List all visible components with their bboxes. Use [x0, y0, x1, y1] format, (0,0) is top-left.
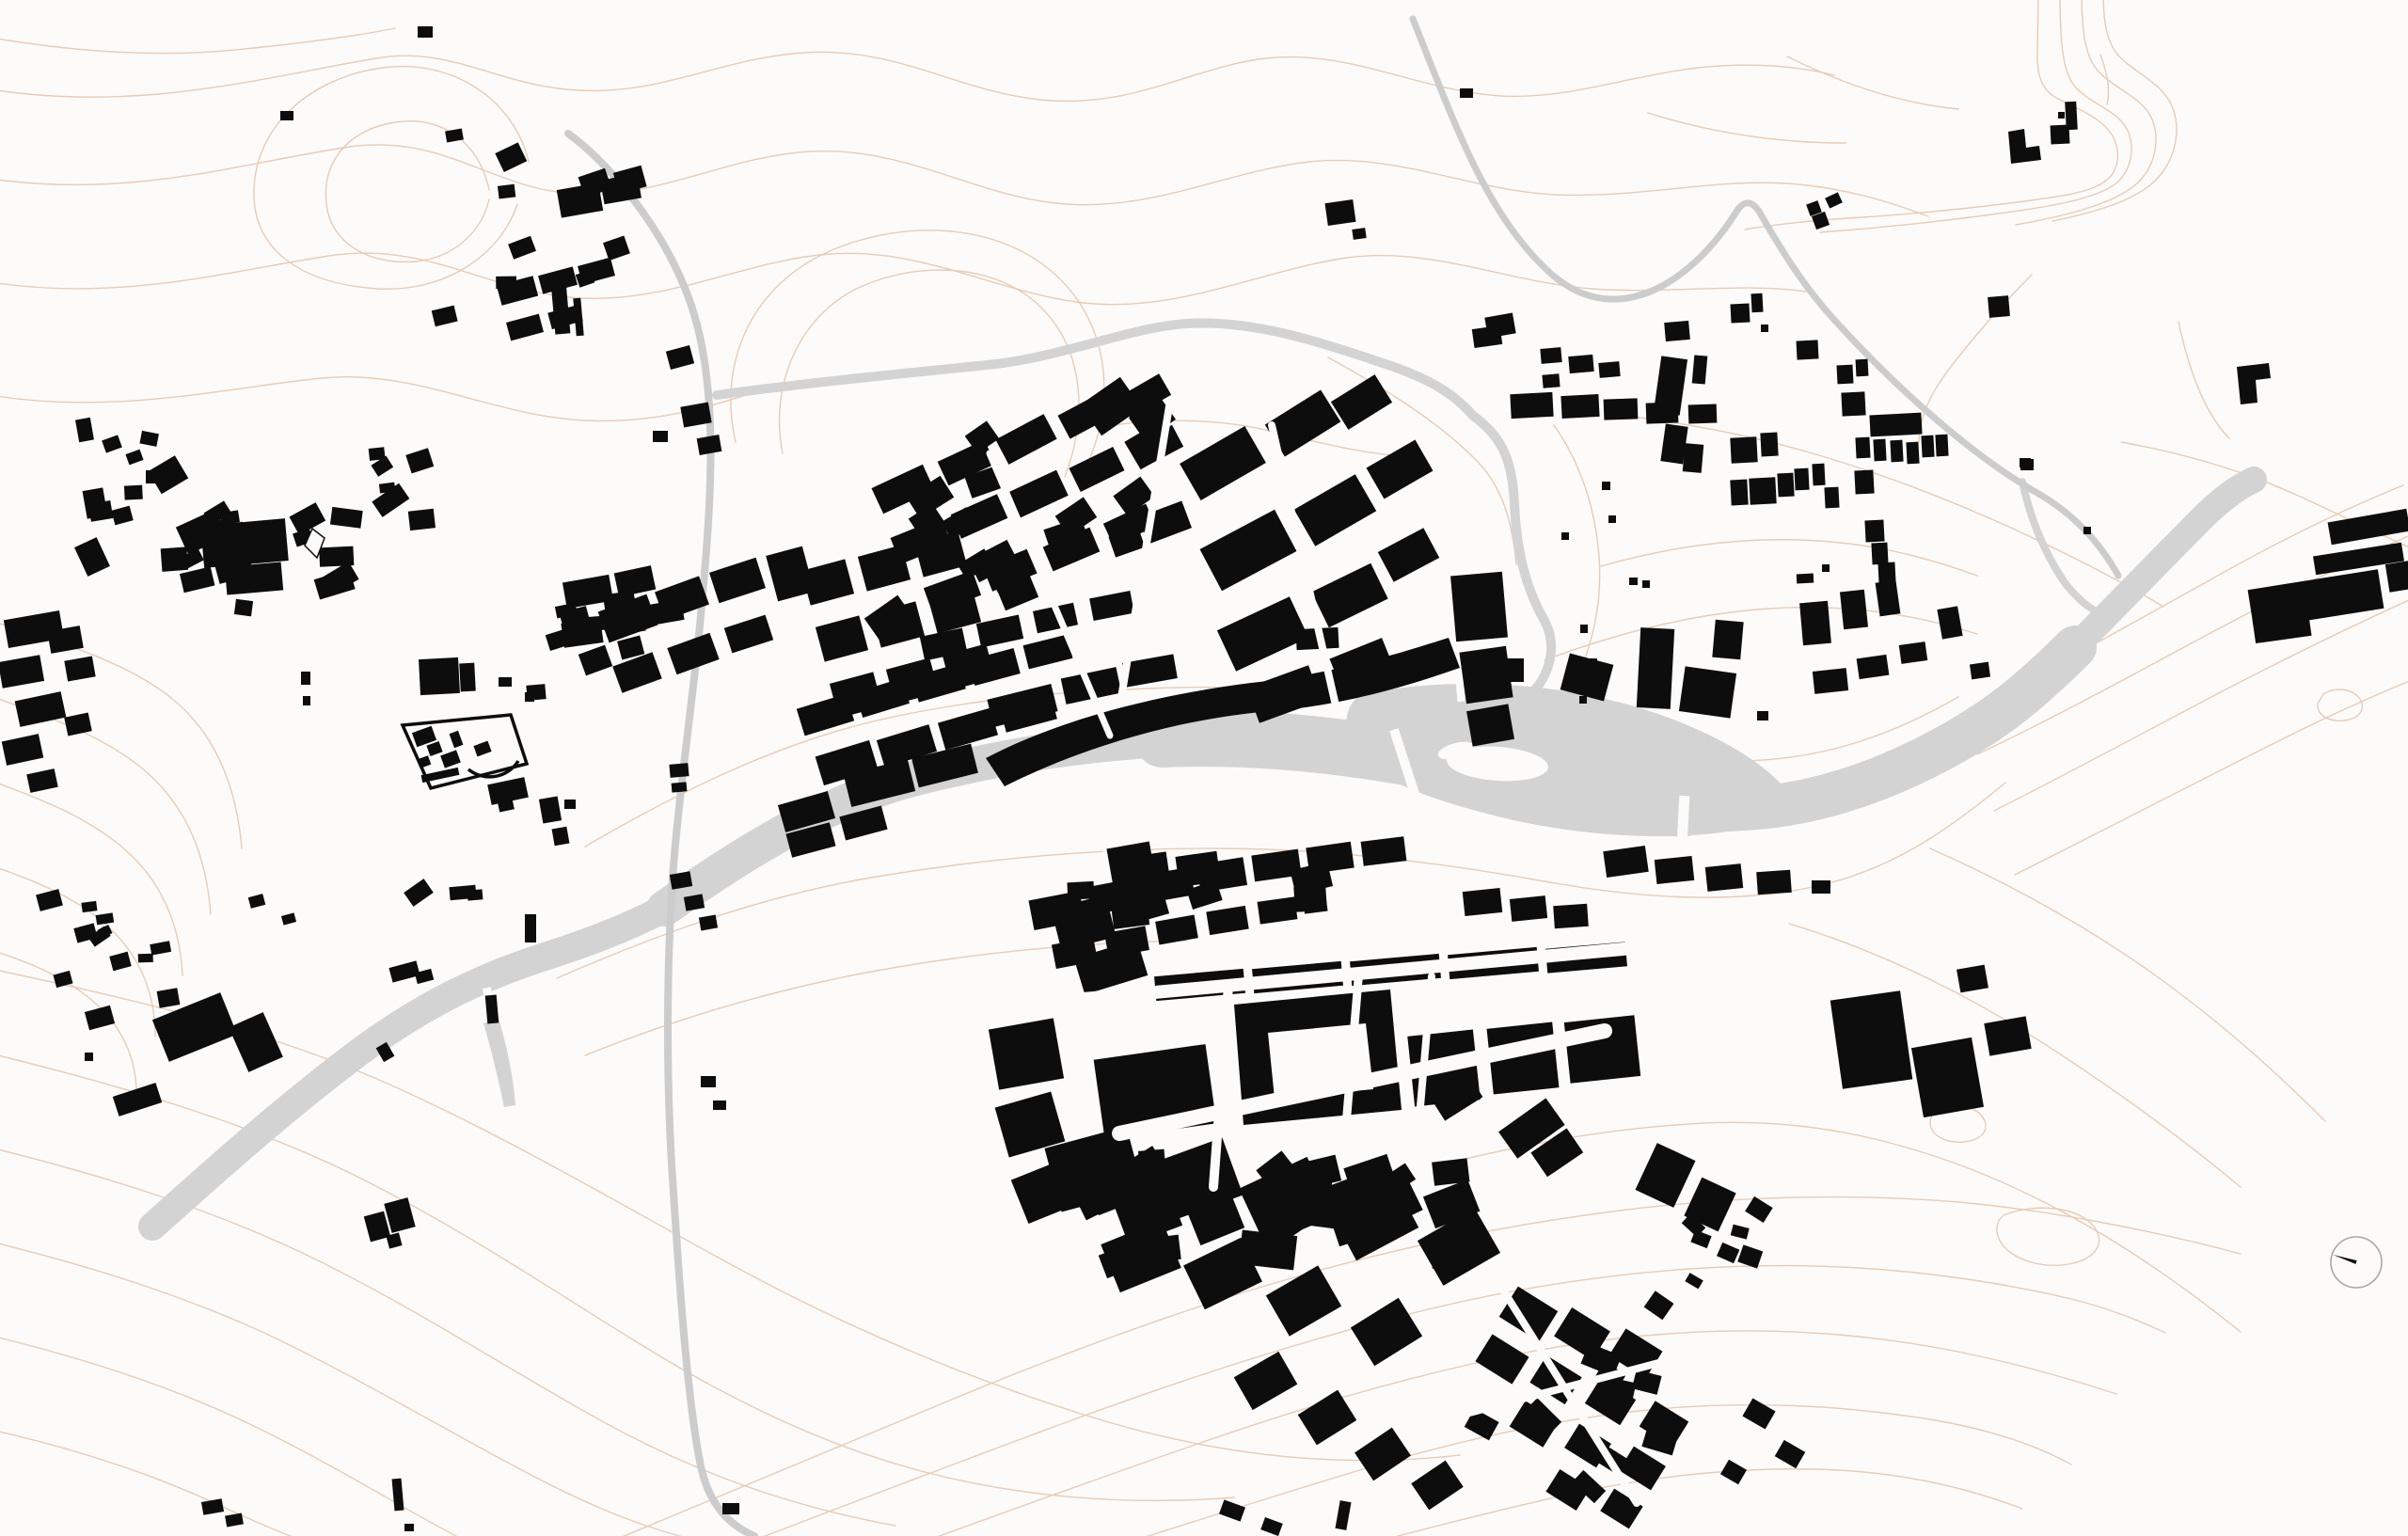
building-footprint — [1361, 836, 1407, 865]
building-footprint — [1679, 666, 1736, 718]
building-footprint — [1856, 359, 1869, 377]
building-footprint — [138, 954, 153, 963]
building-footprint — [498, 184, 515, 199]
building-footprint — [1510, 895, 1547, 922]
building-footprint — [88, 500, 114, 522]
building-footprint — [1873, 439, 1886, 462]
building-footprint — [1463, 888, 1502, 916]
building-footprint — [1655, 856, 1694, 884]
building-footprint — [1796, 340, 1818, 359]
building-footprint — [1150, 1235, 1181, 1263]
building-footprint — [1757, 711, 1768, 720]
building-footprint — [2020, 459, 2034, 470]
building-footprint — [1899, 641, 1928, 664]
building-footprint — [467, 889, 483, 900]
building-footprint — [124, 485, 143, 500]
building-footprint — [722, 1503, 739, 1514]
building-footprint — [234, 599, 253, 617]
building-footprint — [379, 483, 396, 494]
building-footprint — [701, 1076, 716, 1087]
building-footprint — [1608, 515, 1616, 523]
building-footprint — [1869, 413, 1922, 437]
building-footprint — [1822, 564, 1830, 572]
building-footprint — [1730, 303, 1750, 323]
building-footprint — [1560, 394, 1599, 419]
building-footprint — [1970, 662, 1990, 680]
building-footprint — [2058, 112, 2065, 119]
building-footprint — [1683, 443, 1704, 473]
building-footprint — [1642, 580, 1650, 588]
building-footprint — [653, 431, 668, 442]
building-footprint — [419, 657, 460, 695]
building-footprint — [989, 1018, 1064, 1089]
building-footprint — [1629, 578, 1638, 585]
building-footprint — [1890, 440, 1903, 463]
building-footprint — [1906, 442, 1919, 465]
building-footprint — [1664, 321, 1690, 341]
building-footprint — [1598, 361, 1620, 378]
building-footprint — [1761, 325, 1768, 332]
building-footprint — [1553, 904, 1589, 928]
building-footprint — [1432, 1158, 1469, 1186]
building-footprint — [526, 684, 546, 701]
building-footprint — [1705, 863, 1744, 892]
building-footprint — [1510, 392, 1553, 419]
building-footprint — [1637, 627, 1674, 709]
building-footprint — [713, 1101, 726, 1110]
building-footprint — [1777, 473, 1794, 498]
building-footprint — [1799, 601, 1831, 645]
building-footprint — [1864, 519, 1884, 542]
building-footprint — [1813, 668, 1848, 694]
building-footprint — [369, 447, 386, 461]
building-footprint — [81, 901, 97, 912]
building-footprint — [1830, 990, 1912, 1089]
building-footprint — [1352, 228, 1366, 240]
building-footprint — [496, 277, 516, 290]
building-footprint — [1688, 404, 1718, 423]
building-footprint — [1067, 881, 1094, 900]
building-footprint — [1854, 469, 1874, 494]
building-footprint — [1921, 435, 1934, 458]
building-footprint — [1812, 464, 1825, 486]
building-footprint — [672, 782, 688, 792]
building-footprint — [1324, 199, 1355, 226]
building-footprint — [1730, 480, 1748, 506]
building-footprint — [1466, 704, 1514, 746]
building-footprint — [1812, 880, 1830, 894]
building-footprint — [1836, 365, 1853, 385]
building-footprint — [1429, 1237, 1466, 1268]
building-footprint — [459, 663, 476, 692]
building-footprint — [1935, 435, 1948, 457]
building-footprint — [1579, 696, 1587, 704]
building-footprint — [1712, 620, 1743, 659]
figure-ground-map — [0, 0, 2408, 1536]
building-footprint — [85, 1053, 93, 1061]
building-footprint — [1840, 590, 1868, 629]
building-footprint — [1542, 373, 1560, 388]
building-footprint — [525, 914, 536, 942]
building-footprint — [303, 696, 310, 705]
building-footprint — [1760, 433, 1778, 457]
castle-building — [552, 827, 570, 847]
building-footprint — [1855, 437, 1870, 459]
building-footprint — [1602, 482, 1610, 490]
building-footprint — [1540, 347, 1561, 364]
castle-building — [564, 800, 576, 809]
building-footprint — [1988, 295, 2010, 318]
building-footprint — [1580, 625, 1588, 633]
building-footprint — [1129, 851, 1170, 887]
building-footprint — [1751, 293, 1763, 313]
building-footprint — [1797, 574, 1814, 584]
building-footprint — [2083, 527, 2091, 534]
building-footprint — [1450, 572, 1508, 642]
building-footprint — [1692, 355, 1708, 384]
building-footprint — [499, 677, 512, 687]
building-footprint — [1460, 88, 1473, 98]
building-footprint — [669, 763, 689, 778]
building-footprint — [408, 509, 436, 530]
building-footprint — [1568, 355, 1593, 373]
building-footprint — [1505, 658, 1524, 682]
building-footprint — [1730, 436, 1757, 463]
building-footprint — [1877, 562, 1895, 584]
building-footprint — [1911, 1037, 1984, 1117]
building-footprint — [1871, 543, 1888, 565]
building-footprint — [1561, 532, 1569, 540]
building-footprint — [1841, 391, 1865, 416]
building-footprint — [1756, 870, 1792, 895]
building-footprint — [1956, 965, 1988, 993]
building-footprint — [404, 1524, 414, 1531]
building-footprint — [2065, 102, 2078, 131]
building-footprint — [1794, 468, 1809, 491]
building-footprint — [280, 111, 293, 120]
building-footprint — [157, 988, 181, 1008]
map-canvas — [0, 0, 2408, 1536]
building-footprint — [1749, 477, 1776, 504]
building-footprint — [418, 26, 433, 38]
building-footprint — [301, 672, 310, 685]
building-footprint — [1857, 655, 1890, 679]
building-footprint — [1824, 487, 1839, 509]
building-footprint — [1604, 398, 1639, 420]
